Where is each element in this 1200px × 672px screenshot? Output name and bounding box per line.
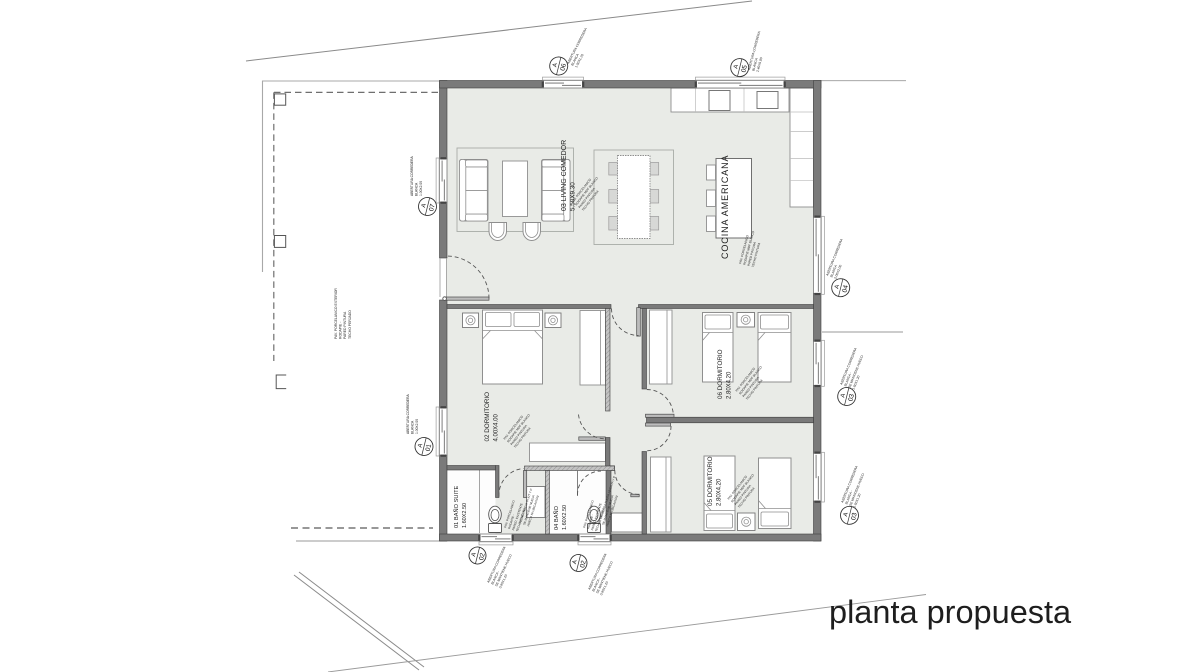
svg-text:planta propuesta: planta propuesta: [829, 594, 1072, 630]
svg-text:2.80X4.20: 2.80X4.20: [716, 478, 722, 506]
svg-text:01 BAÑO SUITE: 01 BAÑO SUITE: [453, 485, 460, 528]
svg-text:1.60X2.50: 1.60X2.50: [562, 505, 568, 530]
svg-text:COCINA AMERICANA: COCINA AMERICANA: [720, 155, 730, 259]
svg-text:2.80X4.20: 2.80X4.20: [726, 371, 732, 399]
svg-text:ABERTURA CORREDERA: ABERTURA CORREDERA: [410, 156, 414, 196]
svg-text:06 DORMITORIO: 06 DORMITORIO: [717, 349, 724, 399]
svg-text:BLANCA: BLANCA: [410, 420, 414, 434]
svg-text:1.00X2.00: 1.00X2.00: [415, 419, 419, 434]
svg-text:TECHO PERJADO: TECHO PERJADO: [348, 310, 352, 339]
svg-text:PARED PINTURA: PARED PINTURA: [343, 311, 347, 339]
svg-text:05 DORMITORIO: 05 DORMITORIO: [707, 456, 714, 506]
svg-text:02 DORMITORIO: 02 DORMITORIO: [484, 392, 491, 442]
svg-text:PAV. PORCELANICO EXTERIOR: PAV. PORCELANICO EXTERIOR: [334, 288, 338, 339]
svg-text:03 LIVING COMEDOR: 03 LIVING COMEDOR: [561, 140, 568, 211]
svg-text:1.00X2.00: 1.00X2.00: [419, 181, 423, 196]
svg-text:ABERTURA CORREDERA: ABERTURA CORREDERA: [406, 394, 410, 434]
svg-text:4.00X4.00: 4.00X4.00: [493, 413, 499, 441]
svg-text:1.60X2.50: 1.60X2.50: [462, 503, 468, 528]
svg-text:04 BAÑO: 04 BAÑO: [553, 505, 560, 530]
svg-text:RODAPIE -: RODAPIE -: [339, 322, 343, 339]
svg-text:BLANCA: BLANCA: [414, 182, 418, 196]
